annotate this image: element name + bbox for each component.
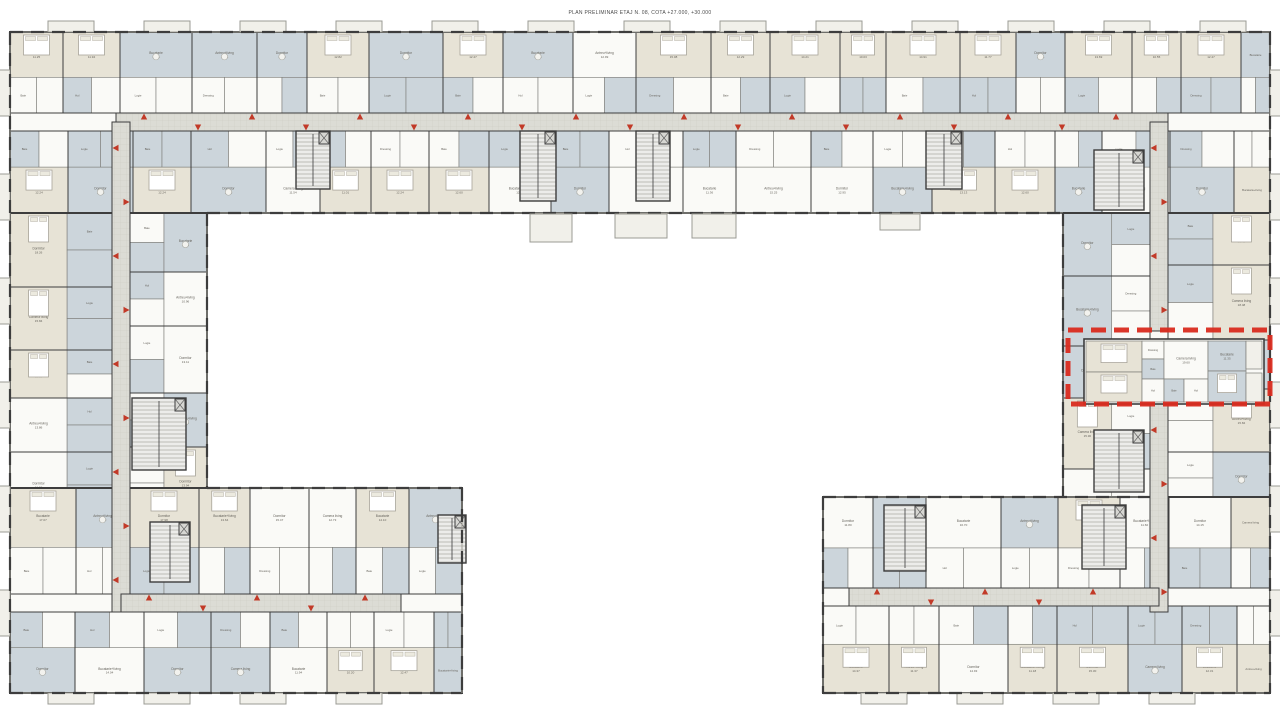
- room-label: 14.91: [919, 55, 927, 59]
- balcony: [1053, 693, 1099, 704]
- room-label: 11.36: [706, 190, 714, 194]
- pillow-icon: [153, 493, 163, 497]
- room-label: Logie: [1187, 282, 1194, 286]
- pillow-icon: [163, 172, 173, 176]
- room: [889, 606, 914, 644]
- room-label: Dressing: [1068, 566, 1079, 570]
- room-label: Baie: [1182, 566, 1188, 570]
- room: [1251, 548, 1271, 588]
- room: [351, 612, 375, 648]
- balcony: [1008, 21, 1054, 32]
- room-label: 13.94: [182, 483, 190, 487]
- balcony: [1270, 70, 1280, 116]
- table-icon: [221, 53, 227, 59]
- room: [241, 612, 271, 648]
- room: [1256, 77, 1271, 113]
- room-label: Baie: [563, 147, 569, 151]
- room-label: 14.21: [801, 55, 809, 59]
- pillow-icon: [794, 37, 804, 41]
- room-label: 18.26: [35, 250, 43, 254]
- room-label: Hol: [208, 147, 213, 151]
- room: [280, 547, 310, 594]
- room-label: 15.47: [276, 518, 284, 522]
- balcony: [0, 174, 10, 220]
- room-label: Baie: [281, 628, 287, 632]
- room: [383, 547, 410, 594]
- pillow-icon: [186, 452, 193, 456]
- table-icon: [899, 189, 905, 195]
- pillow-icon: [32, 493, 42, 497]
- room-label: 12.29: [737, 55, 745, 59]
- balcony: [336, 21, 382, 32]
- room: [964, 131, 996, 167]
- room-label: 11.54: [289, 190, 297, 194]
- room-label: 10.20: [347, 671, 355, 675]
- balcony: [0, 382, 10, 428]
- room: [988, 77, 1016, 113]
- room-label: Baie: [824, 147, 830, 151]
- pillow-icon: [460, 172, 470, 176]
- table-icon: [1026, 521, 1032, 527]
- corridor-top: [116, 113, 1168, 131]
- pillow-icon: [904, 649, 914, 653]
- balcony: [624, 21, 670, 32]
- room: [67, 319, 112, 351]
- room-label: Bucatarie+living: [1242, 188, 1262, 192]
- room-label: Hol: [1073, 623, 1078, 627]
- pillow-icon: [1014, 172, 1024, 176]
- table-icon: [1199, 189, 1205, 195]
- room-label: Dressing: [749, 147, 760, 151]
- room-label: Dressing: [380, 147, 391, 151]
- room-label: 10.03: [859, 55, 867, 59]
- pillow-icon: [1233, 270, 1240, 274]
- room-label: 13.64: [221, 518, 229, 522]
- room-label: 11.25: [33, 55, 41, 59]
- room-label: Logie: [1078, 93, 1085, 97]
- room-label: Baie: [23, 628, 29, 632]
- pillow-icon: [1115, 346, 1125, 350]
- room-label: Baie: [145, 147, 151, 151]
- room: [1055, 131, 1079, 167]
- table-icon: [237, 669, 243, 675]
- room-label: Logie: [1138, 623, 1145, 627]
- room-label: Baie: [455, 93, 461, 97]
- room-label: 11.18: [1029, 669, 1037, 673]
- room-label: Dressing: [203, 93, 214, 97]
- room: [333, 547, 357, 594]
- table-icon: [1075, 189, 1081, 195]
- balcony: [957, 693, 1003, 704]
- room: [327, 612, 351, 648]
- table-icon: [1037, 53, 1043, 59]
- room-label: Hol: [75, 93, 80, 97]
- pillow-icon: [44, 493, 54, 497]
- table-icon: [99, 516, 105, 522]
- room-label: Dressing: [1190, 623, 1201, 627]
- room: [863, 77, 886, 113]
- pillow-icon: [40, 292, 47, 296]
- room: [406, 77, 443, 113]
- room-label: Logie: [135, 93, 142, 97]
- balcony: [720, 21, 766, 32]
- pillow-icon: [1022, 649, 1031, 653]
- pillow-icon: [1082, 649, 1092, 653]
- room-label: 17.07: [39, 518, 47, 522]
- room-label: Bucatarie+living: [438, 669, 458, 673]
- room: [1099, 77, 1133, 113]
- room-label: 12.60: [455, 190, 463, 194]
- pillow-icon: [327, 37, 337, 41]
- room: [842, 131, 873, 167]
- pillow-icon: [401, 172, 411, 176]
- table-icon: [279, 53, 285, 59]
- room: [199, 547, 225, 594]
- balcony: [1104, 21, 1150, 32]
- room-label: 14.37: [852, 669, 860, 673]
- balcony: [144, 21, 190, 32]
- room-label: Camera living: [1242, 521, 1260, 525]
- balcony: [432, 21, 478, 32]
- pillow-icon: [28, 172, 38, 176]
- room: [674, 77, 712, 113]
- pillow-icon: [1034, 649, 1043, 653]
- room-label: 15.25: [770, 190, 778, 194]
- pillow-icon: [40, 218, 47, 222]
- room-label: Logie: [693, 147, 700, 151]
- table-icon: [174, 669, 180, 675]
- room-label: 18.48: [1238, 303, 1246, 307]
- room: [805, 77, 840, 113]
- room: [1093, 606, 1129, 644]
- room-label: Logie: [81, 147, 88, 151]
- floor-plan-page: PLAN PRELIMINAR ETAJ N. 08, COTA +27.000…: [0, 0, 1280, 706]
- room: [1210, 606, 1238, 644]
- table-icon: [535, 53, 541, 59]
- room: [1112, 245, 1150, 277]
- room-label: 13.69: [1095, 55, 1103, 59]
- room-label: Baie: [1150, 367, 1156, 371]
- pillow-icon: [663, 37, 673, 41]
- room-label: Baie: [441, 147, 447, 151]
- pillow-icon: [1115, 377, 1125, 381]
- room: [1168, 421, 1213, 453]
- room: [1168, 303, 1213, 341]
- room: [741, 77, 771, 113]
- room: [299, 612, 328, 648]
- balcony: [1270, 278, 1280, 324]
- room-label: Logie: [884, 147, 891, 151]
- room-label: 15.30: [1084, 434, 1092, 438]
- room-label: 19.60: [1182, 360, 1190, 364]
- room-label: Baie: [1171, 389, 1177, 393]
- room: [848, 548, 873, 588]
- pillow-icon: [40, 172, 50, 176]
- room: [225, 547, 251, 594]
- pillow-icon: [347, 172, 357, 176]
- room: [1008, 606, 1033, 644]
- pillow-icon: [165, 493, 175, 497]
- balcony: [880, 214, 920, 230]
- balcony: [336, 693, 382, 704]
- room: [1041, 77, 1066, 113]
- room-label: Hol: [87, 410, 92, 414]
- room: [130, 243, 164, 273]
- room: [434, 612, 448, 648]
- room: [1231, 548, 1251, 588]
- room-label: 12.99: [601, 55, 609, 59]
- room: [43, 612, 76, 648]
- room: [67, 250, 112, 287]
- room: [257, 77, 282, 113]
- room: [309, 547, 333, 594]
- pillow-icon: [462, 37, 472, 41]
- room: [110, 612, 145, 648]
- balcony: [240, 693, 286, 704]
- pillow-icon: [389, 172, 399, 176]
- room: [400, 131, 429, 167]
- table-icon: [403, 53, 409, 59]
- room-label: 12.95: [838, 190, 846, 194]
- room-label: 14.04: [106, 671, 114, 675]
- room-label: Dressing: [220, 628, 231, 632]
- room-label: 12.60: [1021, 190, 1029, 194]
- room-label: 13.11: [182, 360, 190, 364]
- table-icon: [1152, 667, 1158, 673]
- room-label: Baie: [1188, 224, 1194, 228]
- room-label: Baie: [87, 360, 93, 364]
- pillow-icon: [1103, 377, 1113, 381]
- pillow-icon: [675, 37, 685, 41]
- room: [1030, 548, 1059, 588]
- table-icon: [39, 669, 45, 675]
- room: [1252, 131, 1270, 167]
- room-label: Dressing: [1190, 93, 1201, 97]
- room: [43, 547, 76, 594]
- balcony: [615, 214, 667, 238]
- balcony: [0, 278, 10, 324]
- room: [823, 548, 848, 588]
- room-label: Dressing: [1180, 147, 1191, 151]
- room-label: 14.10: [379, 518, 387, 522]
- room-label: 11.80: [844, 523, 852, 527]
- room-label: Logie: [384, 93, 391, 97]
- pillow-icon: [1211, 649, 1221, 653]
- pillow-icon: [1158, 37, 1167, 41]
- pillow-icon: [352, 652, 361, 656]
- pillow-icon: [214, 493, 224, 497]
- table-icon: [1084, 243, 1090, 249]
- table-icon: [182, 241, 188, 247]
- pillow-icon: [81, 37, 91, 41]
- room-label: 12.31: [1206, 669, 1214, 673]
- balcony: [0, 486, 10, 532]
- room: [1132, 77, 1157, 113]
- balcony: [48, 693, 94, 704]
- pillow-icon: [1100, 37, 1110, 41]
- balcony: [692, 214, 736, 238]
- table-icon: [153, 53, 159, 59]
- pillow-icon: [1242, 218, 1249, 222]
- pillow-icon: [31, 355, 38, 359]
- room: [1168, 239, 1213, 265]
- room-label: 12.47: [469, 55, 477, 59]
- pillow-icon: [1212, 37, 1222, 41]
- balcony: [912, 21, 958, 32]
- pillow-icon: [989, 37, 999, 41]
- room: [840, 77, 863, 113]
- room: [404, 612, 434, 648]
- room-label: Baie: [144, 226, 150, 230]
- pillow-icon: [1103, 346, 1113, 350]
- room-label: Baie: [320, 93, 326, 97]
- pillow-icon: [912, 37, 922, 41]
- room-label: Hol: [518, 93, 523, 97]
- room: [1202, 131, 1234, 167]
- balcony: [816, 21, 862, 32]
- room-label: 12.24: [35, 190, 43, 194]
- room-label: 12.24: [396, 190, 404, 194]
- room: [338, 77, 369, 113]
- room-label: 11.94: [295, 671, 303, 675]
- room-label: Logie: [419, 569, 426, 573]
- balcony: [861, 693, 907, 704]
- pillow-icon: [924, 37, 934, 41]
- pillow-icon: [1026, 172, 1036, 176]
- pillow-icon: [372, 493, 382, 497]
- pillow-icon: [730, 37, 740, 41]
- room: [538, 77, 573, 113]
- corridor-right-upper: [1150, 122, 1168, 331]
- room-label: Logie: [585, 93, 592, 97]
- room-label: Baie: [87, 230, 93, 234]
- room-label: Baie: [366, 569, 372, 573]
- pillow-icon: [1200, 37, 1210, 41]
- room-label: Logie: [157, 628, 164, 632]
- room-label: 13.86: [35, 425, 43, 429]
- room-label: Dressing: [649, 93, 660, 97]
- room-label: Hol: [972, 93, 977, 97]
- room: [346, 131, 372, 167]
- balcony: [528, 21, 574, 32]
- room: [130, 299, 164, 326]
- room: [605, 77, 637, 113]
- corridor-left: [112, 122, 130, 612]
- table-icon: [1084, 310, 1090, 316]
- room-label: Logie: [1012, 566, 1019, 570]
- pillow-icon: [31, 218, 38, 222]
- room-label: Bucatarie: [1250, 53, 1262, 57]
- room-label: Logie: [144, 341, 151, 345]
- pillow-icon: [864, 37, 873, 41]
- room-label: 14.15: [1196, 523, 1204, 527]
- room-label: Hol: [90, 628, 95, 632]
- corridor-bottom-right: [849, 588, 1159, 606]
- room-label: 15.08: [670, 55, 678, 59]
- room: [1025, 131, 1055, 167]
- room-label: Baie: [953, 623, 959, 627]
- room-label: Hol: [1194, 389, 1198, 393]
- room: [156, 77, 192, 113]
- room-label: Antreu+living: [1245, 667, 1262, 671]
- pillow-icon: [1199, 649, 1209, 653]
- unit-room: [1246, 341, 1262, 369]
- table-icon: [97, 189, 103, 195]
- room: [774, 131, 812, 167]
- room-label: 11.35: [1223, 356, 1231, 360]
- balcony: [1270, 486, 1280, 532]
- pillow-icon: [1094, 649, 1104, 653]
- room-label: Logie: [1127, 414, 1134, 418]
- room-label: Hol: [87, 569, 92, 573]
- room: [162, 131, 191, 167]
- pillow-icon: [339, 37, 349, 41]
- room-label: Logie: [836, 623, 843, 627]
- room: [37, 77, 64, 113]
- pillow-icon: [341, 652, 350, 656]
- room-label: 15.84: [1238, 421, 1246, 425]
- room: [1211, 77, 1241, 113]
- room-label: Baie: [723, 93, 729, 97]
- pillow-icon: [915, 649, 925, 653]
- room: [914, 606, 939, 644]
- room-label: Logie: [86, 301, 93, 305]
- room: [1200, 548, 1231, 588]
- room-label: Baie: [20, 93, 26, 97]
- room-label: Logie: [386, 628, 393, 632]
- balcony: [1270, 174, 1280, 220]
- room: [964, 548, 1002, 588]
- pillow-icon: [384, 493, 394, 497]
- room: [923, 77, 960, 113]
- room: [710, 131, 737, 167]
- room: [856, 606, 889, 644]
- room-label: Baie: [24, 569, 30, 573]
- pillow-icon: [1233, 218, 1240, 222]
- room-label: Logie: [501, 147, 508, 151]
- balcony: [240, 21, 286, 32]
- room-label: Hol: [145, 284, 150, 288]
- pillow-icon: [448, 172, 458, 176]
- room-label: Dressing: [259, 569, 270, 573]
- pillow-icon: [226, 493, 236, 497]
- room: [1033, 606, 1058, 644]
- pillow-icon: [1228, 376, 1235, 380]
- room-label: Dressing: [1125, 292, 1136, 296]
- room: [67, 425, 112, 452]
- room-label: 10.96: [182, 299, 190, 303]
- room: [130, 360, 164, 394]
- balcony: [1149, 693, 1195, 704]
- room-label: Hol: [625, 147, 630, 151]
- pillow-icon: [335, 172, 345, 176]
- room-label: 12.82: [334, 55, 342, 59]
- table-icon: [1238, 477, 1244, 483]
- room-label: Logie: [1127, 227, 1134, 231]
- room: [473, 77, 503, 113]
- room-label: 16.70: [960, 523, 968, 527]
- pillow-icon: [393, 652, 403, 656]
- room-label: Logie: [276, 147, 283, 151]
- room-label: 10.55: [1153, 55, 1161, 59]
- room-label: 11.01: [342, 190, 350, 194]
- pillow-icon: [31, 292, 38, 296]
- pillow-icon: [40, 355, 47, 359]
- room-label: Hol: [1008, 147, 1013, 151]
- pillow-icon: [806, 37, 816, 41]
- room: [448, 612, 462, 648]
- room-label: 13.13: [960, 190, 968, 194]
